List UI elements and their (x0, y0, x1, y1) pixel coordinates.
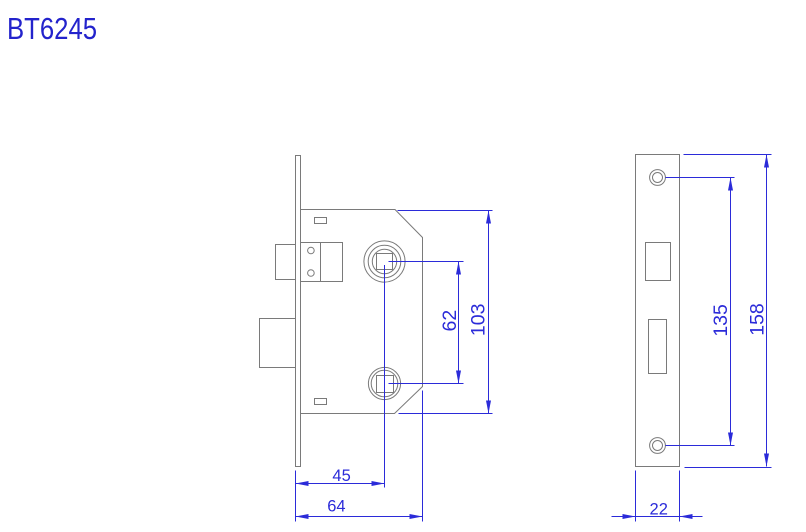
svg-text:158: 158 (747, 303, 769, 336)
svg-text:22: 22 (650, 501, 668, 519)
svg-text:135: 135 (710, 304, 732, 337)
svg-text:BT6245: BT6245 (7, 12, 97, 47)
svg-text:45: 45 (332, 467, 350, 485)
svg-text:62: 62 (439, 310, 461, 332)
svg-text:64: 64 (327, 497, 345, 515)
svg-text:103: 103 (467, 304, 489, 337)
